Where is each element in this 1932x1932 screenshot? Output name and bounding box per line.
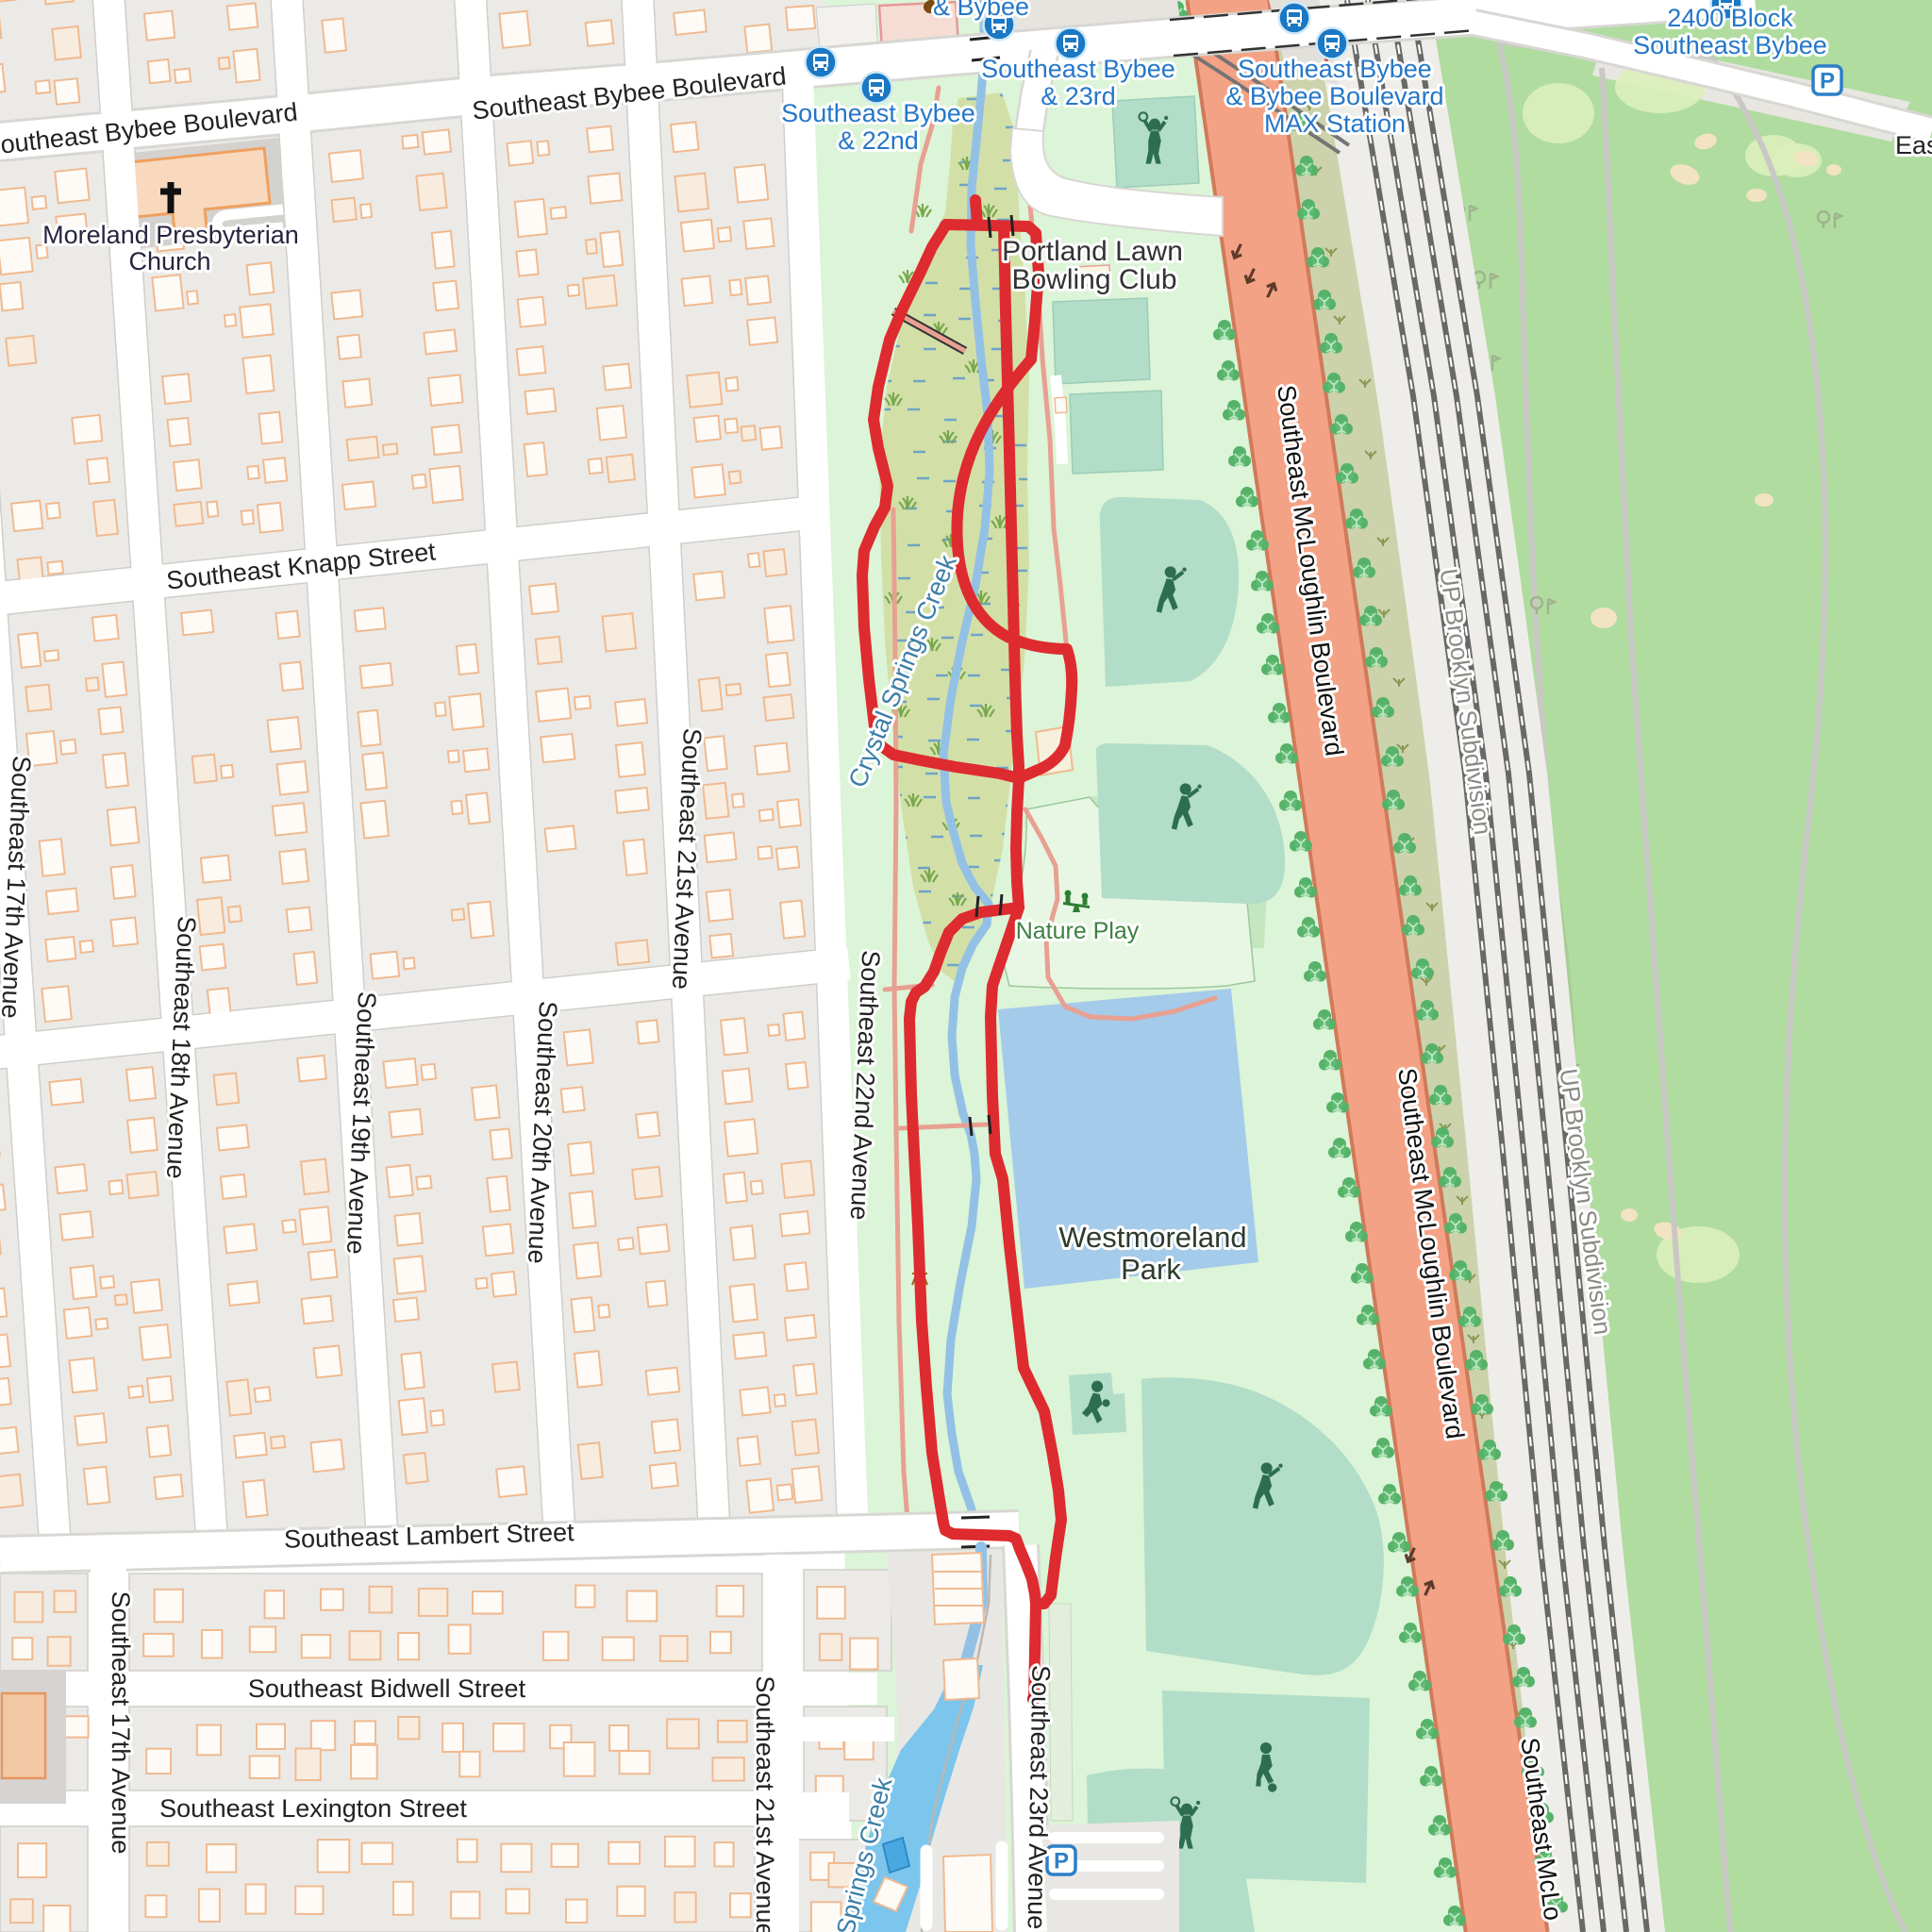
svg-text:Portland Lawn: Portland Lawn <box>1002 236 1183 267</box>
svg-text:Church: Church <box>128 247 210 275</box>
svg-text:Southeast Bidwell Street: Southeast Bidwell Street <box>248 1674 526 1703</box>
svg-text:Moreland Presbyterian: Moreland Presbyterian <box>42 221 299 249</box>
svg-text:& 23rd: & 23rd <box>1041 82 1116 110</box>
svg-text:& Bybee: & Bybee <box>933 0 1029 21</box>
svg-text:Southeast Bybee: Southeast Bybee <box>981 55 1175 83</box>
svg-text:Bowling Club: Bowling Club <box>1011 264 1176 295</box>
svg-text:Southeast 17th Avenue: Southeast 17th Avenue <box>107 1591 135 1855</box>
svg-text:Park: Park <box>1121 1253 1181 1286</box>
svg-text:East: East <box>1895 131 1932 159</box>
svg-text:Southeast Lexington Street: Southeast Lexington Street <box>159 1794 467 1823</box>
svg-text:Nature Play: Nature Play <box>1016 918 1140 944</box>
svg-text:Southeast Bybee: Southeast Bybee <box>1238 55 1432 83</box>
svg-text:Southeast Bybee: Southeast Bybee <box>781 99 975 127</box>
svg-text:Southeast 23rd Avenue: Southeast 23rd Avenue <box>1023 1665 1056 1930</box>
svg-text:& 22nd: & 22nd <box>838 126 919 155</box>
svg-text:& Bybee Boulevard: & Bybee Boulevard <box>1225 82 1443 110</box>
svg-text:Southeast Bybee: Southeast Bybee <box>1633 31 1827 59</box>
svg-text:MAX Station: MAX Station <box>1264 109 1406 138</box>
svg-text:2400 Block: 2400 Block <box>1667 4 1793 32</box>
svg-text:Westmoreland: Westmoreland <box>1058 1221 1246 1254</box>
svg-text:Southeast 21st Avenue: Southeast 21st Avenue <box>751 1675 779 1932</box>
